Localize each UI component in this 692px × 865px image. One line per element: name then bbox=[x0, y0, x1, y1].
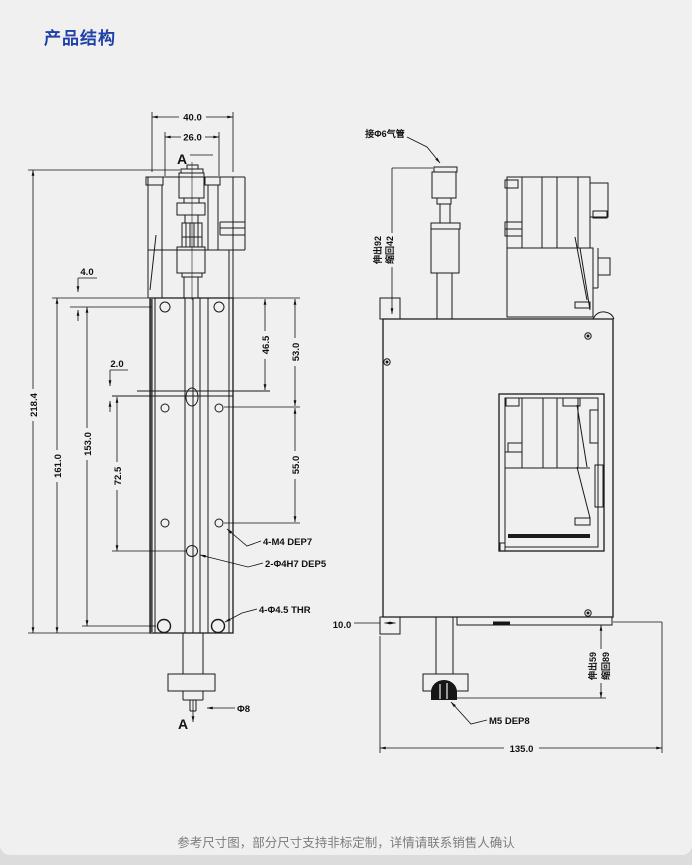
callout-thru-holes: 4-Φ4.5 THR bbox=[259, 605, 311, 616]
air-port-label: 接Φ6气管 bbox=[365, 128, 404, 139]
dim-dowel-pitch: 72.5 bbox=[113, 466, 124, 485]
air-port-callout: 接Φ6气管 bbox=[365, 128, 440, 163]
dim-top-to-dowel: 46.5 bbox=[261, 335, 272, 354]
front-main-plate bbox=[112, 298, 270, 633]
dim-overall-width: 40.0 bbox=[183, 113, 202, 124]
dim-row2-to-row3: 55.0 bbox=[291, 456, 302, 475]
footer-note: 参考尺寸图，部分尺寸支持非标定制，详情请联系销售人确认 bbox=[0, 832, 692, 851]
section-label-top: A bbox=[177, 151, 187, 167]
front-air-fitting bbox=[177, 162, 205, 300]
dim-hole-span: 153.0 bbox=[83, 432, 94, 456]
dim-rod-diameter: Φ8 bbox=[237, 704, 250, 715]
side-view: 接Φ6气管 伸出92 缩回42 bbox=[333, 128, 662, 755]
side-bottom-assembly bbox=[423, 617, 612, 700]
dim-block-width: 10.0 bbox=[333, 620, 352, 631]
side-window-cutout bbox=[499, 394, 604, 551]
lower-stroke-retract: 缩回89 bbox=[600, 652, 611, 680]
dim-fitting-width: 26.0 bbox=[183, 133, 202, 144]
lower-stroke-dimension: 伸出59 缩回89 bbox=[448, 625, 611, 698]
dim-top-to-row2: 53.0 bbox=[291, 343, 302, 362]
overall-length-dimension: 135.0 bbox=[380, 622, 662, 755]
dim-edge-to-holes: 4.0 bbox=[80, 267, 93, 278]
upper-stroke-dimension: 伸出92 缩回42 bbox=[372, 168, 433, 314]
side-air-fitting bbox=[431, 167, 460, 319]
dim-overall-length: 135.0 bbox=[510, 744, 534, 755]
product-structure-card: 产品结构 bbox=[0, 0, 692, 855]
block-width-dimension: 10.0 bbox=[333, 620, 396, 631]
body-screws bbox=[384, 333, 591, 616]
section-label-bottom: A bbox=[178, 716, 188, 732]
callout-mount-holes: 4-M4 DEP7 bbox=[263, 537, 312, 548]
upper-stroke-retract: 缩回42 bbox=[384, 236, 395, 264]
upper-stroke-extend: 伸出92 bbox=[372, 236, 383, 265]
front-mounting-holes bbox=[158, 302, 225, 633]
technical-drawing: 40.0 26.0 A 218.4 161.0 bbox=[0, 0, 692, 820]
lower-stroke-extend: 伸出59 bbox=[587, 652, 598, 681]
rod-thread-callout: M5 DEP8 bbox=[451, 702, 530, 727]
callout-dowel-holes: 2-Φ4H7 DEP5 bbox=[265, 559, 327, 570]
dim-slot-offset: 2.0 bbox=[110, 359, 123, 370]
rod-thread-label: M5 DEP8 bbox=[489, 716, 530, 727]
side-top-motor bbox=[505, 177, 614, 319]
dim-body-height: 161.0 bbox=[53, 454, 64, 478]
front-piston-rod bbox=[168, 633, 215, 711]
dim-overall-height: 218.4 bbox=[29, 392, 40, 416]
front-view: 40.0 26.0 A 218.4 161.0 bbox=[27, 111, 327, 732]
